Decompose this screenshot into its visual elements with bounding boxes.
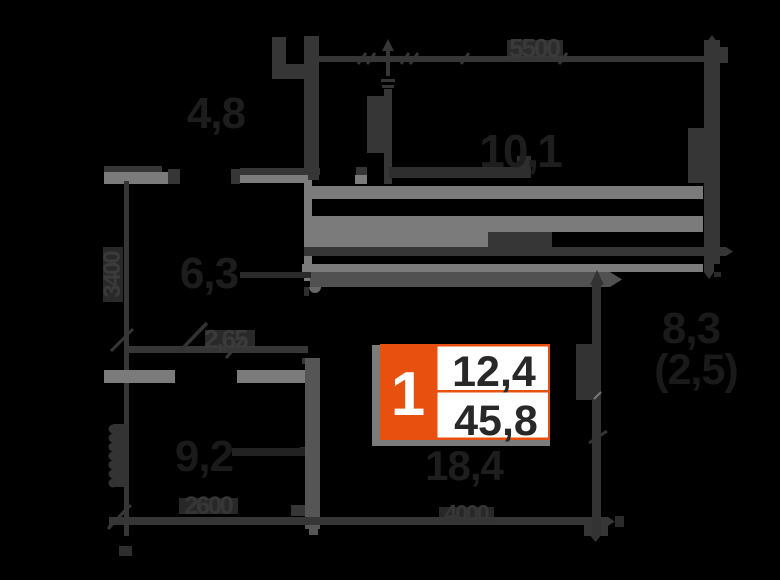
svg-text:3400: 3400 xyxy=(99,251,126,298)
svg-text:2600: 2600 xyxy=(184,492,233,520)
svg-text:4,8: 4,8 xyxy=(187,89,246,138)
svg-text:45,8: 45,8 xyxy=(454,397,538,445)
svg-text:9,2: 9,2 xyxy=(175,432,233,481)
svg-text:18,4: 18,4 xyxy=(425,442,504,489)
svg-text:6,3: 6,3 xyxy=(180,249,238,298)
svg-text:5500: 5500 xyxy=(509,33,560,63)
svg-text:4000: 4000 xyxy=(444,500,488,526)
svg-text:12,4: 12,4 xyxy=(452,348,536,396)
svg-text:10,1: 10,1 xyxy=(479,125,562,177)
svg-text:1: 1 xyxy=(391,360,425,429)
svg-text:2,65: 2,65 xyxy=(204,324,248,354)
svg-text:(2,5): (2,5) xyxy=(654,346,737,394)
